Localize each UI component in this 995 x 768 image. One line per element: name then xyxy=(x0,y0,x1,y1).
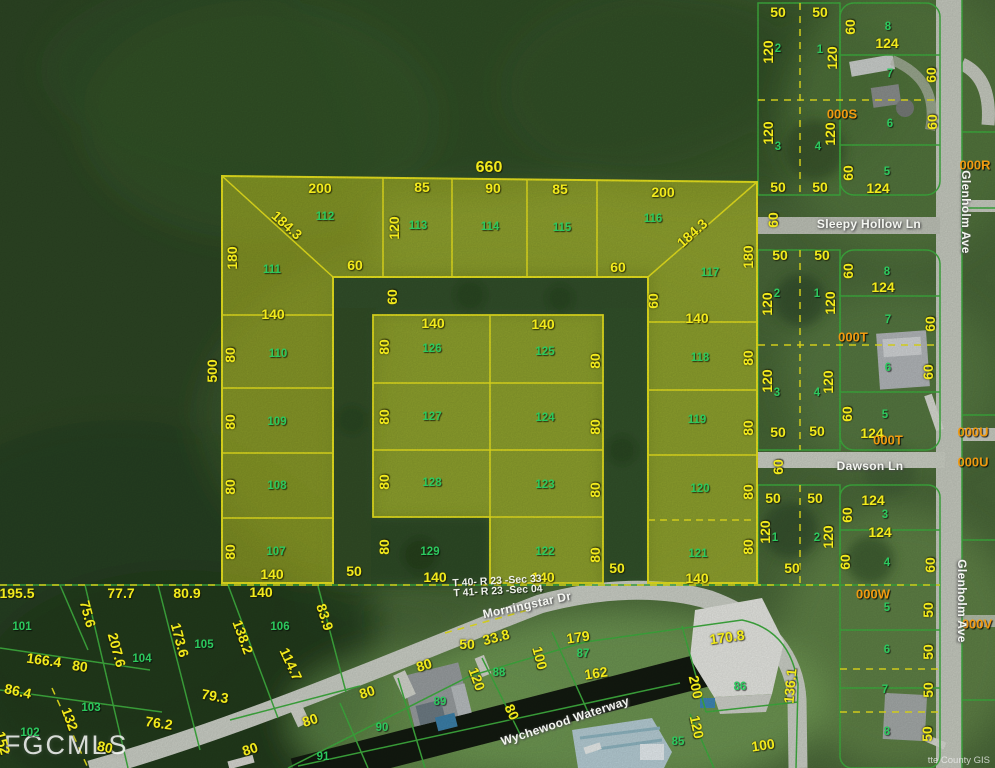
parcel-map: FGCMLS tte County GIS 660200859085200184… xyxy=(0,0,995,768)
aerial-basemap xyxy=(0,0,995,768)
photo-noise-overlay xyxy=(0,0,995,768)
